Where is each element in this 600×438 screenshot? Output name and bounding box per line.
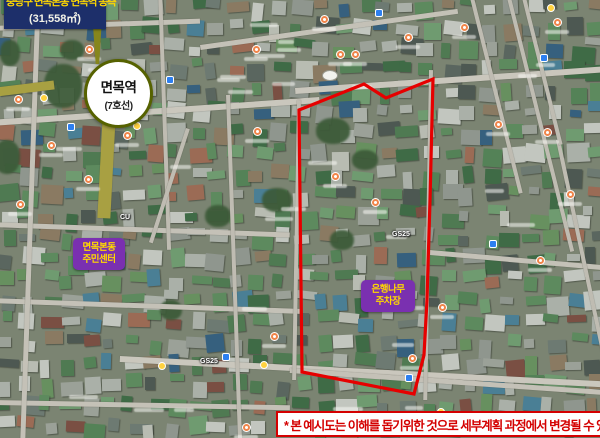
facility-marker-icon [375, 9, 383, 17]
poi-marker-icon [320, 15, 329, 24]
facility-marker-icon [67, 123, 75, 131]
disclaimer-text: * 본 예시도는 이해를 돕기위한 것으로 세부계획 과정에서 변경될 수 있음 [284, 415, 600, 434]
poi-marker-icon [16, 200, 25, 209]
facility-marker-icon [540, 54, 548, 62]
poi-marker-icon [14, 95, 23, 104]
bus-stop-icon [260, 361, 268, 369]
facility-marker-icon [222, 353, 230, 361]
parking-line2: 주차장 [376, 296, 401, 308]
map-label-gs25-2: GS25 [200, 358, 218, 365]
site-area-text: (31,558㎡) [6, 10, 104, 26]
bus-stop-icon [40, 94, 48, 102]
poi-marker-icon [460, 23, 469, 32]
station-badge: 면목역 (7호선) [84, 59, 153, 128]
poi-marker-icon [553, 18, 562, 27]
bus-stop-icon [158, 362, 166, 370]
poi-marker-icon [566, 190, 575, 199]
school-marker-icon [322, 70, 338, 81]
site-title-text: 중랑구 면목본동 면목역 동측 [6, 0, 104, 9]
site-title-box: 중랑구 면목본동 면목역 동측 (31,558㎡) [4, 0, 106, 29]
poi-marker-icon [253, 127, 262, 136]
poi-marker-icon [84, 175, 93, 184]
poi-marker-icon [371, 198, 380, 207]
station-name: 면목역 [101, 76, 137, 96]
disclaimer-note: * 본 예시도는 이해를 돕기위한 것으로 세부계획 과정에서 변경될 수 있음 [276, 411, 600, 437]
poi-marker-icon [242, 423, 251, 432]
bus-stop-icon [547, 4, 555, 12]
map-label-cu: CU [120, 214, 130, 221]
parking-label: 은행나무 주차장 [361, 280, 415, 312]
poi-marker-icon [252, 45, 261, 54]
poi-marker-icon [47, 141, 56, 150]
poi-marker-icon [351, 50, 360, 59]
poi-marker-icon [85, 45, 94, 54]
community-center-line1: 면목본동 [83, 242, 116, 254]
poi-marker-icon [408, 354, 417, 363]
poi-marker-icon [123, 131, 132, 140]
facility-marker-icon [166, 76, 174, 84]
map-poi-layer [0, 0, 600, 438]
community-center-line2: 주민센터 [83, 254, 116, 266]
poi-marker-icon [543, 128, 552, 137]
map-figure: GS25 GS25 CU 중랑구 면목본동 면목역 동측 (31,558㎡) 면… [0, 0, 600, 438]
poi-marker-icon [331, 172, 340, 181]
station-line: (7호선) [104, 97, 132, 112]
facility-marker-icon [489, 240, 497, 248]
poi-marker-icon [404, 33, 413, 42]
parking-line1: 은행나무 [372, 284, 405, 296]
poi-marker-icon [494, 120, 503, 129]
poi-marker-icon [536, 256, 545, 265]
map-label-gs25-1: GS25 [392, 231, 410, 238]
poi-marker-icon [336, 50, 345, 59]
facility-marker-icon [405, 374, 413, 382]
community-center-label: 면목본동 주민센터 [73, 238, 125, 270]
poi-marker-icon [438, 303, 447, 312]
poi-marker-icon [270, 332, 279, 341]
